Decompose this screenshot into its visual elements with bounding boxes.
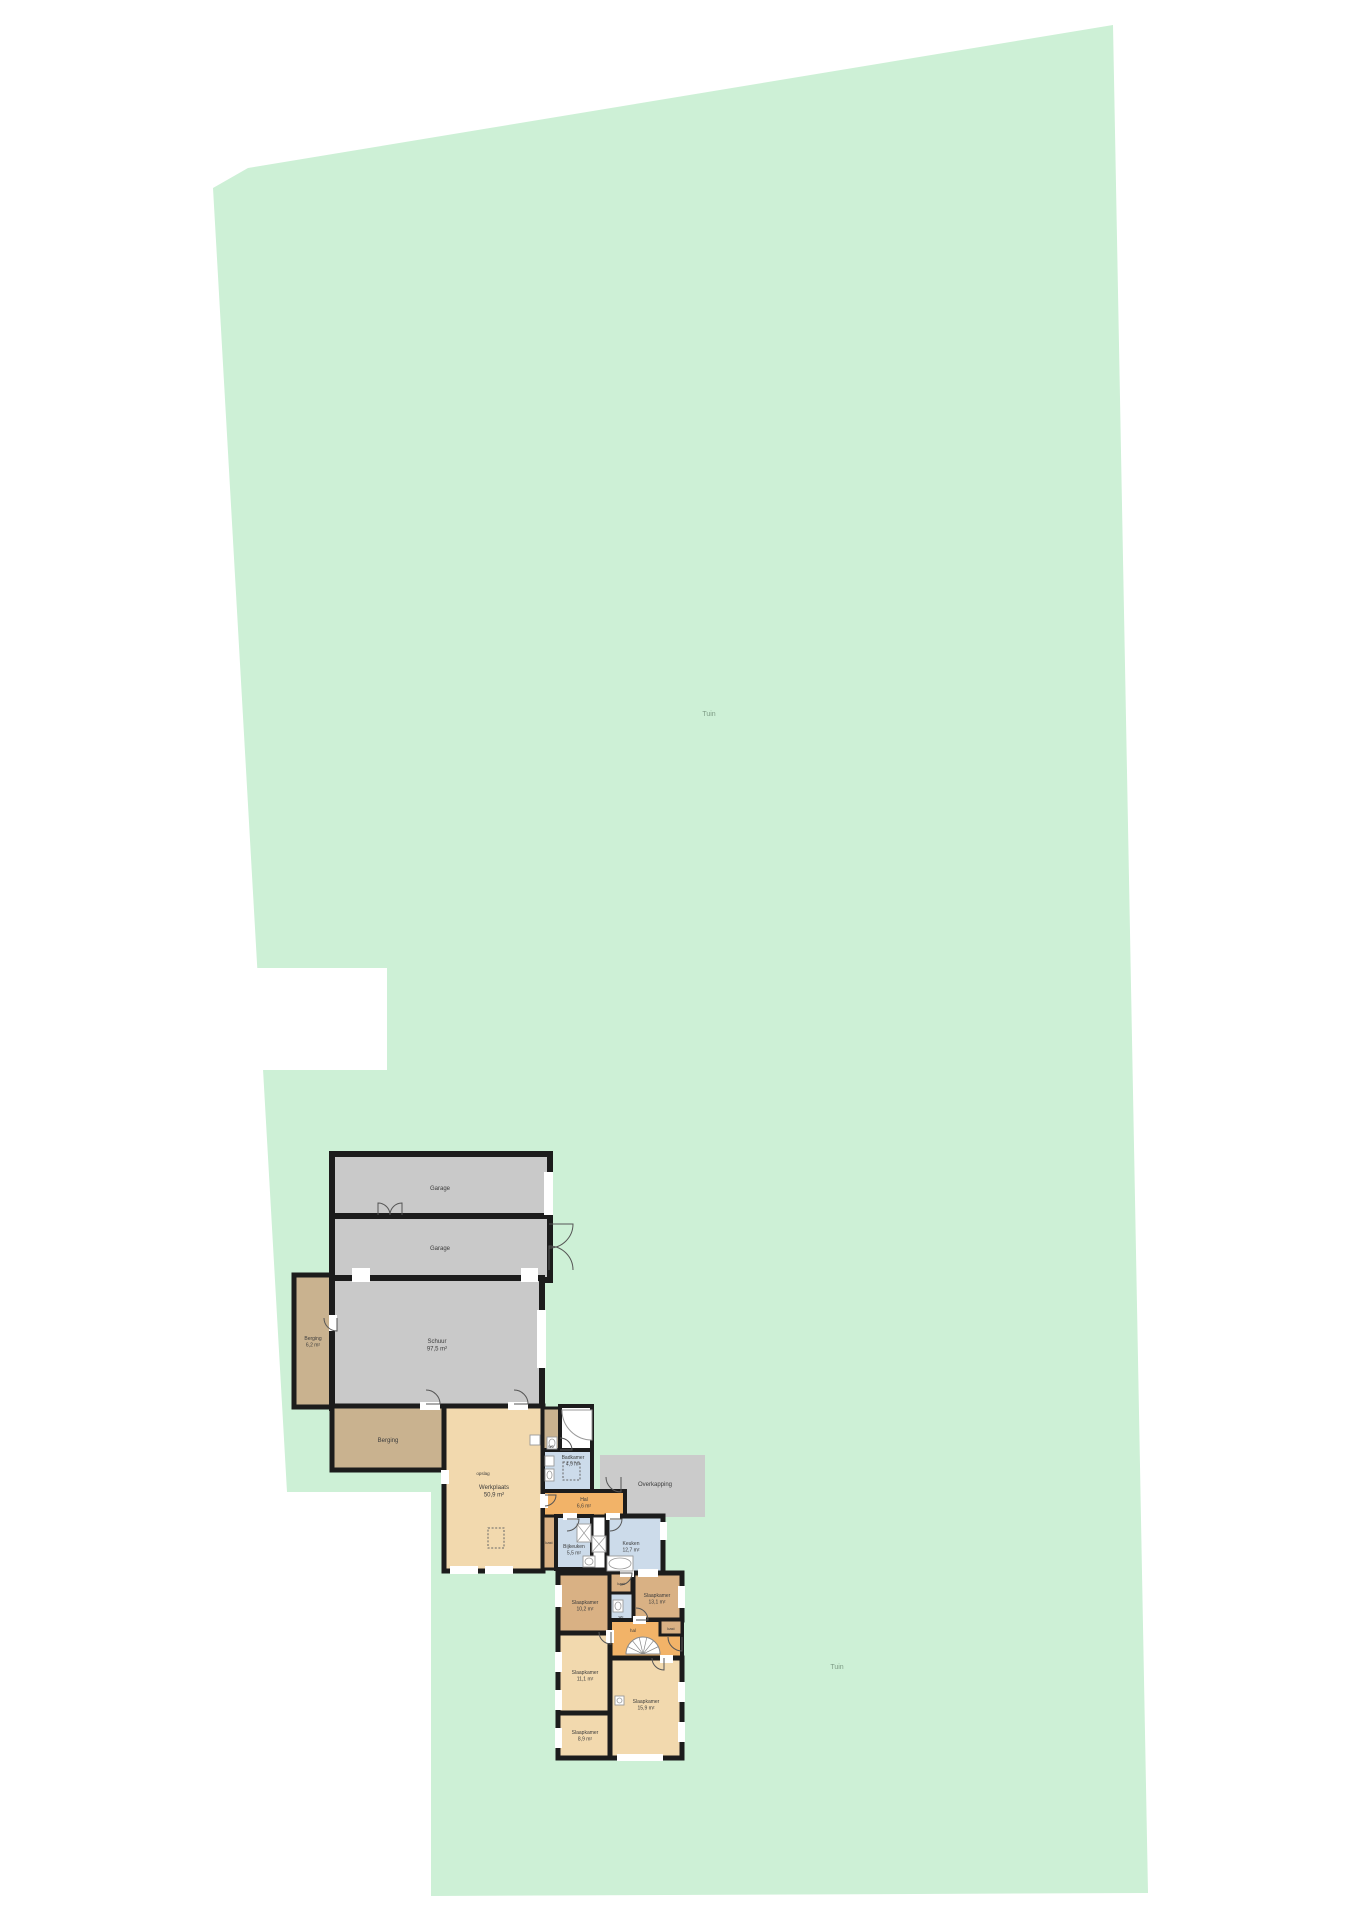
garden-label: Tuin bbox=[702, 711, 715, 718]
fixture-washbasin bbox=[545, 1456, 554, 1466]
room-label-wc-2: wc bbox=[619, 1614, 624, 1619]
wall-opening bbox=[420, 1402, 440, 1410]
wall-opening bbox=[352, 1268, 370, 1282]
wall-opening bbox=[555, 1728, 562, 1748]
extra-label: opslag bbox=[476, 1471, 490, 1476]
wall-opening bbox=[638, 1569, 658, 1577]
room-label-wc-1: wc bbox=[548, 1444, 554, 1449]
wall-opening bbox=[555, 1652, 562, 1672]
wall-opening bbox=[660, 1655, 673, 1663]
wall-opening bbox=[555, 1690, 562, 1710]
wall-opening bbox=[555, 1585, 562, 1607]
room-label-garage-2: Garage bbox=[430, 1246, 451, 1252]
room-label-kast-2: kast bbox=[617, 1581, 625, 1586]
fixture-washbasin bbox=[530, 1435, 540, 1445]
room-label-kast-3: kast bbox=[667, 1626, 675, 1631]
room-label-kast-1: kast bbox=[545, 1540, 553, 1545]
room-label-keuken: Keuken12,7 m² bbox=[623, 1541, 640, 1554]
wall-opening bbox=[544, 1172, 553, 1215]
wall-opening bbox=[441, 1470, 449, 1484]
room-label-schuur: Schuur97,5 m² bbox=[427, 1339, 447, 1353]
room-label-berging-2: Berging bbox=[378, 1438, 399, 1444]
wall-opening bbox=[660, 1522, 667, 1540]
wall-opening bbox=[606, 1630, 614, 1643]
room-label-garage-1: Garage bbox=[430, 1186, 451, 1192]
wall-opening bbox=[617, 1754, 663, 1761]
wall-opening bbox=[678, 1722, 685, 1742]
wall-opening bbox=[537, 1310, 546, 1368]
wall-opening bbox=[485, 1566, 513, 1574]
wall-opening bbox=[678, 1682, 685, 1702]
lot-notch bbox=[250, 968, 387, 1070]
garden-label: Tuin bbox=[830, 1664, 843, 1671]
room-label-overkapping: Overkapping bbox=[638, 1482, 672, 1488]
floorplan-canvas: TuinTuinGarageGarageBerging6,2 m²Schuur9… bbox=[0, 0, 1358, 1920]
wall-opening bbox=[450, 1566, 478, 1574]
room-label-berging-1: Berging6,2 m² bbox=[304, 1336, 321, 1349]
wall-opening bbox=[678, 1586, 685, 1608]
room-label-hal-2: hal bbox=[630, 1628, 636, 1633]
wall-opening bbox=[508, 1402, 528, 1410]
fixture-washbasin bbox=[615, 1696, 624, 1705]
wall-opening bbox=[521, 1268, 538, 1282]
